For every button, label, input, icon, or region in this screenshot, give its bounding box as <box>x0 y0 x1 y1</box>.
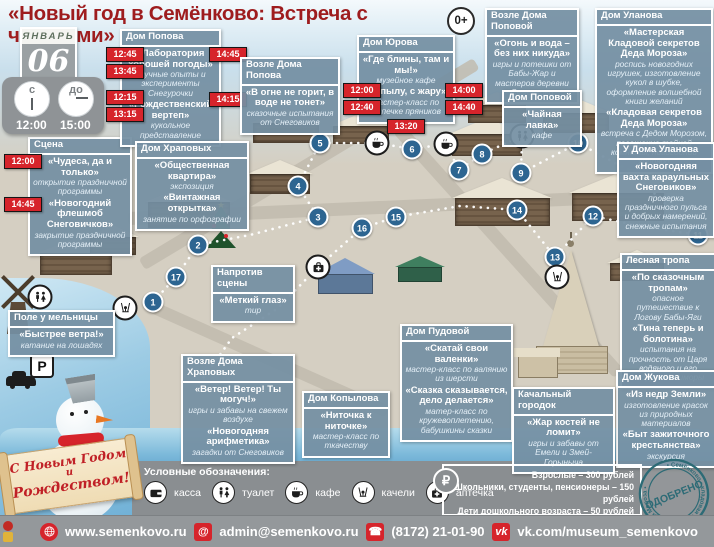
footer-bar: www.semenkovo.ru @ admin@semenkovo.ru ☎ … <box>0 515 714 547</box>
cafe-icon <box>365 131 390 156</box>
calendar-card: ЯНВАРЬ 06 <box>20 27 77 84</box>
footer-phone[interactable]: ☎ (8172) 21-01-90 <box>366 523 484 541</box>
map-marker-17: 17 <box>166 267 187 288</box>
legend-label: касса <box>174 487 201 499</box>
time-badge: 14:45 <box>4 197 42 212</box>
map-marker-16: 16 <box>352 218 373 239</box>
kassa-icon <box>144 481 167 504</box>
legend-label: качели <box>382 487 415 499</box>
event-title: «Ветер! Ветер! Ты могуч!» <box>186 385 290 406</box>
event-title: «Скатай свои валенки» <box>405 344 508 365</box>
swing-icon <box>113 296 138 321</box>
clock-from-label: с <box>15 84 49 96</box>
callout-header: Дом Поповой <box>504 92 580 108</box>
globe-icon <box>40 523 58 541</box>
event-title: «Ниточка к ниточке» <box>307 411 385 432</box>
event-desc: игры и забавы от Емели и Змей-Горыныча <box>517 439 610 467</box>
event-desc: мастер-класс по ткачеству <box>307 432 385 451</box>
callout-naprotiv-sceny: Напротив сцены «Меткий глаз» тир <box>211 265 295 323</box>
map-marker-12: 12 <box>583 206 604 227</box>
map-marker-4: 4 <box>288 176 309 197</box>
church <box>518 238 624 388</box>
event-title: «Кладовая секретов Деда Мороза» <box>600 108 708 129</box>
partner-logos <box>3 521 13 542</box>
firstaid-icon <box>306 255 331 280</box>
callout-vozle-doma-khrapovykh: Возле Дома Храповых «Ветер! Ветер! Ты мо… <box>181 354 295 464</box>
time-badge: 14:40 <box>445 100 483 115</box>
parking-icon: P <box>30 354 54 378</box>
event-title: «Новогодняя арифметика» <box>186 427 290 448</box>
event-desc: изготовление красок из природных материа… <box>621 401 711 429</box>
callout-pole-u-melnitsy: Поле у мельницы «Быстрее ветра!» катание… <box>8 310 115 357</box>
callout-header: Дом Храповых <box>137 143 247 159</box>
map-marker-14: 14 <box>507 200 528 221</box>
event-title: «Мастерская Кладовой секретов Деда Мороз… <box>600 28 708 60</box>
website-link[interactable]: www.semenkovo.ru <box>65 524 187 539</box>
event-title: «Общественная квартира» <box>140 161 244 182</box>
event-desc: занятие по орфографии <box>140 215 244 224</box>
time-badge: 14:00 <box>445 83 483 98</box>
callout-header: Сцена <box>30 139 130 155</box>
time-badge: 12:15 <box>106 90 144 105</box>
callout-lesnaya-tropa: Лесная тропа «По сказочным тропам» опасн… <box>620 253 714 389</box>
event-desc: опасное путешествие к Логову Бабы-Яги <box>625 294 711 322</box>
event-title: «Быстрее ветра!» <box>13 330 110 341</box>
event-title: «Жар костей не ломит» <box>517 418 610 439</box>
event-desc: катание на лошадях <box>13 341 110 350</box>
legend-label: кафе <box>315 487 340 499</box>
event-desc: открытие праздничной программы <box>33 178 127 197</box>
callout-dom-kopylova: Дом Копылова «Ниточка к ниточке» мастер-… <box>302 391 390 458</box>
time-badge: 12:00 <box>4 154 42 169</box>
price-line: Школьники, студенты, пенсионеры – 150 ру… <box>444 482 634 506</box>
swing-icon <box>545 265 570 290</box>
legend-label: туалет <box>242 487 274 499</box>
callout-kachalny-gorodok: Качальный городок «Жар костей не ломит» … <box>512 387 615 474</box>
map-marker-2: 2 <box>188 235 209 256</box>
map-marker-3: 3 <box>308 207 329 228</box>
vk-link[interactable]: vk.com/museum_semenkovo <box>517 524 698 539</box>
callout-dom-popova: Дом Попова «Лаборатория хорошей погоды» … <box>120 29 221 147</box>
map-marker-1: 1 <box>143 292 164 313</box>
calendar-month: ЯНВАРЬ <box>22 29 75 44</box>
callout-header: Возле Дома Попова <box>242 59 338 86</box>
event-title: «Тина теперь и болотина» <box>625 324 711 345</box>
time-to: 15:00 <box>60 118 91 132</box>
callout-header: Напротив сцены <box>213 267 293 294</box>
event-title: «Где блины, там и мы!» <box>362 55 450 76</box>
callout-dom-yurova: Дом Юрова «Где блины, там и мы!» музейно… <box>357 35 455 124</box>
callout-u-doma-ulanova: У Дома Уланова «Новогодняя вахта карауль… <box>617 142 714 238</box>
event-map-poster: ★ 1234567891011121314151617 P «Новый год… <box>0 0 714 547</box>
callout-header: У Дома Уланова <box>619 144 713 160</box>
callout-dom-popovoy: Дом Поповой «Чайная лавка» кафе <box>502 90 582 147</box>
clock-from-icon: с <box>14 81 50 117</box>
pavilion <box>398 256 442 282</box>
event-title: «Чайная лавка» <box>507 110 577 131</box>
event-desc: экспозиция <box>140 182 244 191</box>
time-badge: 13:15 <box>106 107 144 122</box>
map-marker-8: 8 <box>472 144 493 165</box>
price-list: Взрослые – 300 рублейШкольники, студенты… <box>442 464 642 516</box>
callout-header: Возле Дома Поповой <box>487 10 577 37</box>
ruble-icon: ₽ <box>433 468 459 494</box>
footer-email[interactable]: @ admin@semenkovo.ru <box>194 523 358 541</box>
callout-header: Лесная тропа <box>622 255 714 271</box>
time-from: 12:00 <box>16 118 47 132</box>
car-icon <box>6 376 36 386</box>
callout-dom-khrapovykh: Дом Храповых «Общественная квартира» экс… <box>135 141 249 231</box>
calendar-day: 06 <box>22 44 75 80</box>
map-marker-15: 15 <box>386 207 407 228</box>
price-line: Взрослые – 300 рублей <box>444 470 634 482</box>
clock-to-icon: до <box>58 81 94 117</box>
event-desc: загадки от Снеговиков <box>186 448 290 457</box>
map-marker-7: 7 <box>449 160 470 181</box>
cafe-icon <box>434 132 459 157</box>
event-title: «Чудеса, да и только» <box>33 157 127 178</box>
phone-icon: ☎ <box>366 523 384 541</box>
event-desc: матер-класс по кружевоплетению, бабушкин… <box>405 407 508 435</box>
callout-header: Поле у мельницы <box>10 312 113 328</box>
wc-icon <box>28 285 53 310</box>
cafe-icon <box>285 481 308 504</box>
callout-header: Дом Копылова <box>304 393 388 409</box>
greeting-banner: С Новым Годом и Рождеством! <box>2 437 137 514</box>
callout-vozle-doma-popova: Возле Дома Попова «В огне не горит, в во… <box>240 57 340 135</box>
event-desc: проверка праздничного пульса и добрых на… <box>622 194 710 231</box>
email-link[interactable]: admin@semenkovo.ru <box>219 524 358 539</box>
event-title: «По сказочным тропам» <box>625 273 711 294</box>
event-title: «Из недр Земли» <box>621 390 711 401</box>
event-desc: роспись новогодних игрушек, изготовление… <box>600 60 708 106</box>
email-icon: @ <box>194 523 212 541</box>
footer-vk[interactable]: vk vk.com/museum_semenkovo <box>492 523 698 541</box>
time-panel: с до 12:00 15:00 <box>2 77 104 134</box>
callout-header: Дом Жукова <box>618 372 714 388</box>
event-title: «Огонь и вода – без них никуда» <box>490 39 574 60</box>
event-title: «Винтажная открытка» <box>140 193 244 214</box>
phone-number[interactable]: (8172) 21-01-90 <box>391 524 484 539</box>
village-house <box>455 178 550 226</box>
wc-icon <box>212 481 235 504</box>
callout-dom-pudovoy: Дом Пудовой «Скатай свои валенки» мастер… <box>400 324 513 442</box>
event-desc: сказочные испытания от Снеговиков <box>245 109 335 128</box>
time-badge: 12:40 <box>343 100 381 115</box>
callout-header: Возле Дома Храповых <box>183 356 293 383</box>
map-marker-6: 6 <box>402 139 423 160</box>
swing-icon <box>352 481 375 504</box>
event-desc: кафе <box>507 131 577 140</box>
event-title: «Новогодний флешмоб Снеговичков» <box>33 199 127 231</box>
event-desc: игры и забавы на свежем воздухе <box>186 406 290 425</box>
time-badge: 12:45 <box>106 47 144 62</box>
time-badge: 13:45 <box>106 64 144 79</box>
callout-header: Дом Пудовой <box>402 326 511 342</box>
event-desc: кукольное представление <box>125 121 216 140</box>
map-marker-5: 5 <box>310 133 331 154</box>
time-badge: 12:00 <box>343 83 381 98</box>
callout-header: Качальный городок <box>514 389 613 416</box>
clock-to-label: до <box>59 84 93 96</box>
time-badge: 13:20 <box>387 119 425 134</box>
footer-website[interactable]: www.semenkovo.ru <box>40 523 187 541</box>
map-marker-9: 9 <box>511 163 532 184</box>
event-title: «Быт зажиточного крестьянства» <box>621 430 711 451</box>
callout-scena: Сцена «Чудеса, да и только» открытие пра… <box>28 137 132 256</box>
age-rating-badge: 0+ <box>447 7 475 35</box>
vk-icon: vk <box>492 523 510 541</box>
event-title: «Сказка сказывается, дело делается» <box>405 386 508 407</box>
event-title: «Новогодняя вахта караульных Снеговиков» <box>622 162 710 194</box>
callout-header: Дом Уланова <box>597 10 711 26</box>
event-desc: закрытие праздничной программы <box>33 231 127 250</box>
event-desc: мастер-класс по валянию из шерсти <box>405 365 508 384</box>
event-title: «В огне не горит, в воде не тонет» <box>245 88 335 109</box>
event-desc: тир <box>216 306 290 315</box>
